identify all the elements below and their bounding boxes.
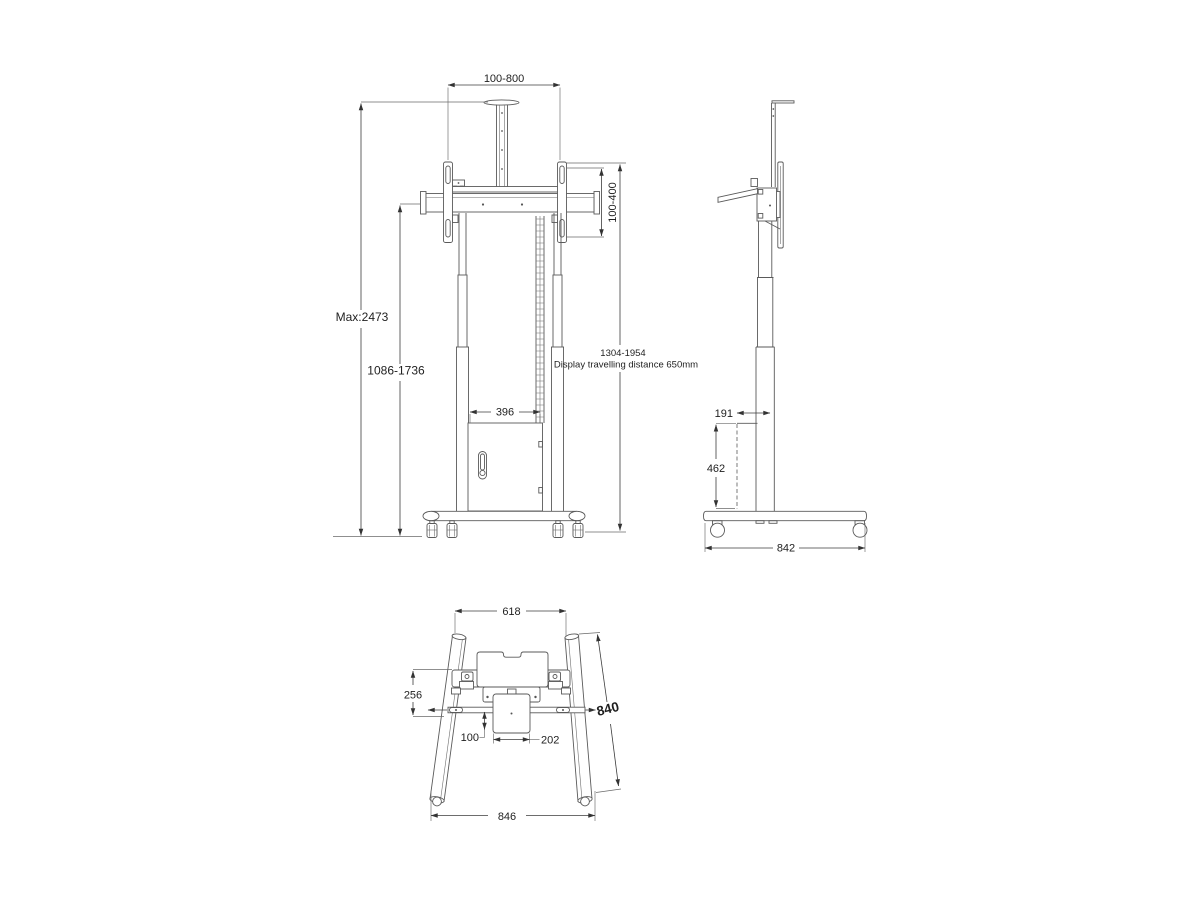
- dim-front-width-range: 100-800: [484, 73, 524, 85]
- cabinet: [468, 423, 543, 511]
- dim-top-plate-width: 202: [541, 735, 559, 747]
- front-view: 100-800 Max:2473 1086-1736 1304-1954 Dis…: [333, 73, 698, 538]
- dim-side-top-offset: 191: [715, 408, 733, 420]
- side-cabinet-hidden: [737, 423, 758, 509]
- caster-wheel: [711, 523, 725, 537]
- caster: [427, 521, 437, 538]
- dim-side-base-depth: 842: [777, 543, 795, 555]
- leg-right: [564, 633, 592, 806]
- caster: [573, 521, 583, 538]
- side-column: [756, 221, 775, 511]
- dim-front-travel-note: Display travelling distance 650mm: [554, 360, 698, 371]
- base-plate-top: [448, 652, 585, 733]
- caster: [553, 521, 563, 538]
- dim-top-base-width: 846: [498, 811, 516, 823]
- dim-front-max-height: Max:2473: [336, 310, 389, 324]
- dimension-drawing-page: 100-800 Max:2473 1086-1736 1304-1954 Dis…: [0, 0, 1200, 900]
- side-view: 191 462 842: [704, 101, 868, 555]
- leg-left: [429, 633, 466, 806]
- dim-front-travel-range: 1304-1954: [600, 348, 645, 359]
- side-base-casters: [704, 511, 868, 537]
- caster: [447, 521, 457, 538]
- dim-side-cabinet-height: 462: [707, 463, 725, 475]
- cabinet-top: [477, 652, 548, 687]
- cable-chain: [536, 216, 544, 423]
- top-pole: [484, 100, 519, 187]
- side-mount: [718, 179, 780, 230]
- dim-top-width: 618: [502, 606, 520, 618]
- dim-top-leg-length: 840: [595, 699, 620, 719]
- dim-front-height-range: 1086-1736: [367, 364, 425, 378]
- dim-top-column-offset: 100: [461, 732, 479, 744]
- lift-column-left: [456, 213, 469, 512]
- side-dimensions: 191 462 842: [705, 408, 865, 555]
- top-view: 618 256 840 100 202: [404, 606, 621, 823]
- base-casters-front: [423, 511, 585, 537]
- dim-front-vesa-range: 100-400: [607, 182, 619, 222]
- dim-top-plate-depth: 256: [404, 690, 422, 702]
- dim-front-cabinet-width: 396: [496, 407, 514, 419]
- technical-drawing: 100-800 Max:2473 1086-1736 1304-1954 Dis…: [0, 0, 1200, 900]
- tilt-arm: [718, 189, 758, 203]
